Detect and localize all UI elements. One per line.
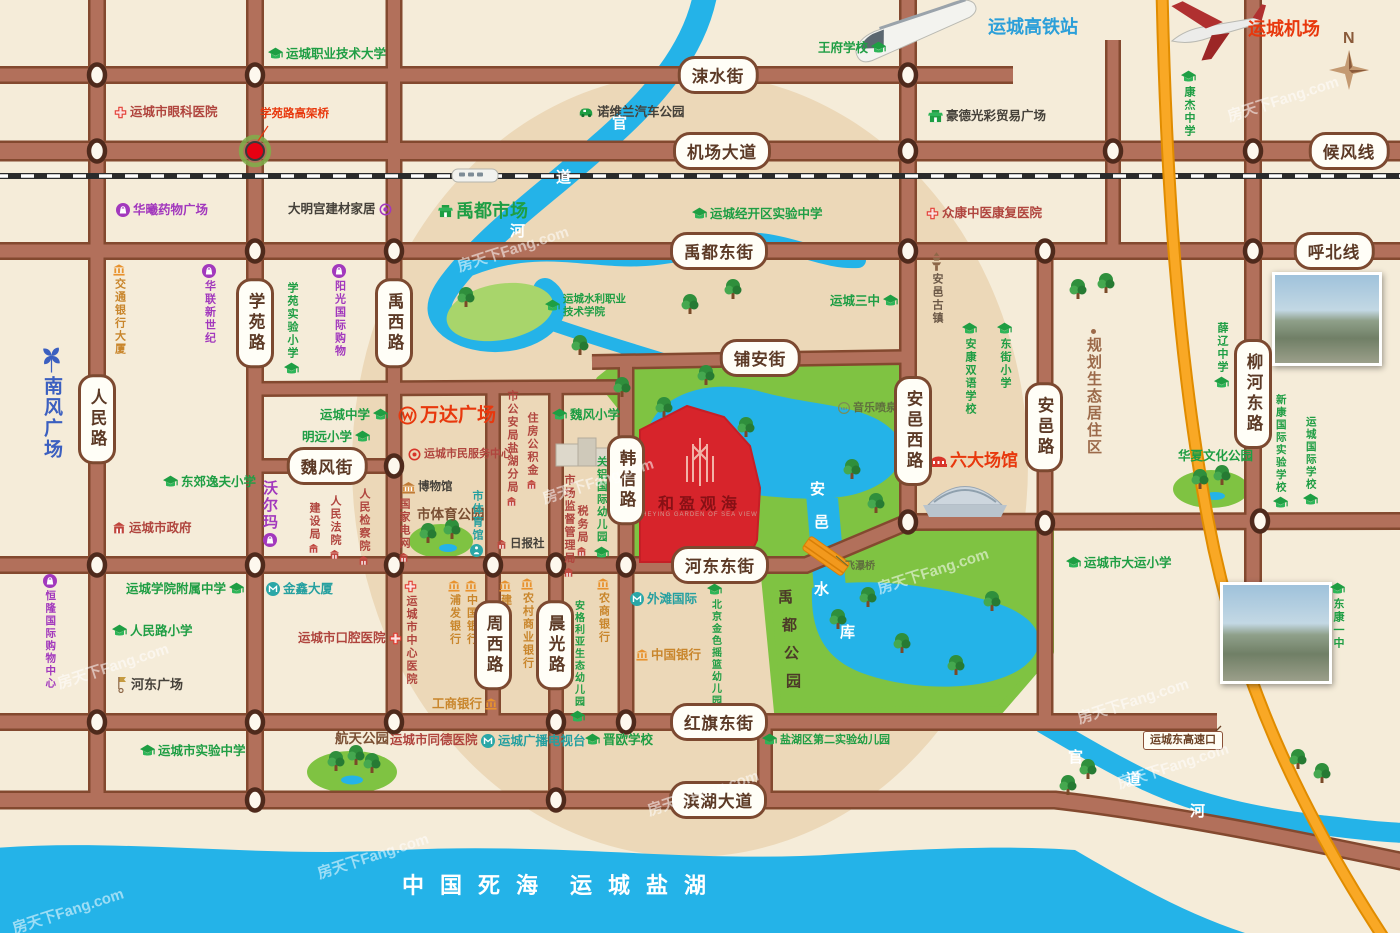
place-label: 运城中学: [320, 409, 370, 422]
place-marker: 农商银行: [597, 578, 609, 644]
school-icon: [997, 322, 1012, 336]
place-label: 东郊逸夫小学: [181, 476, 256, 489]
place-marker: 运城学院附属中学: [126, 582, 244, 596]
road-label: 安邑路: [1025, 382, 1063, 472]
place-label: 运城市眼科医院: [130, 106, 218, 119]
fountain-icon: [838, 402, 850, 414]
place-marker: 六大场馆: [930, 452, 1018, 469]
school-icon: [355, 430, 370, 444]
school-icon: [163, 475, 178, 489]
place-marker: 诺维兰汽车公园: [578, 106, 685, 119]
road-label: 柳河东路: [1234, 339, 1272, 449]
place-label: 晋欧学校: [603, 734, 653, 747]
road-label: 机场大道: [673, 132, 771, 170]
place-marker: 国家电网: [398, 498, 409, 563]
place-marker: 税务局: [576, 505, 587, 557]
place-label: 众康中医康复医院: [942, 207, 1042, 220]
place-label: 安邑古镇: [931, 273, 942, 325]
place-label: 学苑实验小学: [286, 282, 297, 360]
place-marker: 外滩国际: [630, 592, 697, 606]
place-marker: 交通银行大厦: [113, 264, 125, 356]
road-label: 晨光路: [536, 600, 574, 690]
school-icon: [373, 408, 388, 422]
school-icon: [585, 733, 600, 747]
office-icon: [481, 734, 495, 748]
place-label: 东街小学: [999, 338, 1010, 390]
place-label: 华联新世纪: [204, 280, 215, 345]
place-marker: 大明宫建材家居: [288, 203, 392, 216]
place-marker: 王府学校: [818, 41, 886, 55]
place-marker: 市场监督管理局: [563, 474, 574, 578]
place-marker: 住房公积金: [526, 412, 537, 490]
road-label: 铺安街: [720, 339, 801, 377]
place-label: 人民法院: [329, 495, 340, 547]
place-marker: 工商银行: [432, 698, 497, 711]
govsm-icon: [576, 546, 587, 557]
place-label: 运城市口腔医院: [298, 632, 386, 645]
sea-label: 中国死海: [402, 868, 554, 900]
park-name-char: 都: [782, 618, 797, 633]
place-label: 关铝国际幼儿园: [596, 456, 607, 544]
school-icon: [594, 546, 609, 560]
school-icon: [1066, 556, 1081, 570]
road-label: 呼北线: [1294, 232, 1375, 270]
place-marker: 东街小学: [997, 322, 1012, 390]
market-icon: [438, 205, 453, 218]
place-marker: 华曦药物广场: [116, 203, 208, 217]
park-name-char: 园: [786, 674, 801, 689]
govsm-icon: [506, 496, 517, 507]
place-label: 日报社: [510, 539, 545, 551]
place-marker: 运城市大运小学: [1066, 556, 1172, 570]
gov-icon: [112, 521, 126, 535]
govsm-icon: [496, 539, 507, 550]
govsm-icon: [308, 543, 319, 554]
govsm-icon: [398, 552, 409, 563]
place-label: 运城市同德医院: [390, 734, 478, 747]
river-name-char: 河: [1190, 804, 1205, 819]
river-name-char: 官: [612, 116, 627, 131]
place-label: 运城市实验中学: [158, 745, 246, 758]
place-label: 农商银行: [598, 592, 609, 644]
road-label: 安邑西路: [894, 376, 932, 486]
place-marker: 运城三中: [830, 294, 898, 308]
shop-icon: [202, 264, 216, 278]
train-on-railway-icon: [452, 169, 498, 182]
cross-icon: [114, 106, 127, 119]
place-label: 运城经开区实验中学: [710, 208, 823, 221]
place-label: 运城东高速口: [1143, 731, 1223, 750]
place-marker: 运城市同德医院: [390, 734, 494, 747]
place-marker: 航天公园: [335, 732, 389, 746]
place-marker: 金鑫大厦: [266, 582, 333, 596]
school-icon: [1330, 582, 1345, 596]
shop-icon: [116, 203, 130, 217]
school-icon: [229, 582, 244, 596]
place-marker: 华夏文化公园: [1178, 450, 1253, 463]
place-label: 浦发银行: [449, 594, 460, 646]
place-marker: 众康中医康复医院: [926, 207, 1042, 220]
place-marker: 规划生态居住区: [1086, 328, 1101, 456]
place-marker: 人民路小学: [112, 624, 193, 638]
shop-icon: [263, 533, 277, 547]
place-label: 王府学校: [818, 42, 868, 55]
road-label: 周西路: [474, 600, 512, 690]
place-label: 豪德光彩贸易广场: [946, 110, 1046, 123]
school-icon: [140, 744, 155, 758]
place-marker: 运城市实验中学: [140, 744, 246, 758]
dot-icon: [1090, 328, 1097, 335]
cross-icon: [926, 207, 939, 220]
school-icon: [570, 710, 585, 724]
flag-icon: [116, 676, 128, 693]
park-name-char: 公: [784, 646, 799, 661]
place-marker: 北京金色摇篮幼儿园: [707, 583, 722, 707]
place-marker: 安邑古镇: [930, 252, 943, 325]
place-label: 盐湖区第二实验幼儿园: [780, 735, 890, 746]
school-icon: [552, 408, 567, 422]
place-label: 运城学院附属中学: [126, 583, 226, 596]
place-marker: 运城市民服务中心: [408, 448, 512, 461]
place-marker: 阳光国际购物: [332, 264, 346, 358]
place-label: 农村商业银行: [522, 592, 533, 670]
car-icon: [578, 106, 594, 118]
govsm-icon: [358, 555, 369, 566]
place-marker: 运城职业技术大学: [268, 47, 386, 61]
bank-icon: [636, 649, 648, 661]
place-marker: 运城东高速口: [1143, 731, 1223, 750]
place-marker: 沃尔玛: [262, 480, 277, 547]
place-label: 安康双语学校: [964, 338, 975, 416]
pcircle-icon: [379, 203, 392, 216]
pinwheel-icon: [38, 342, 65, 374]
place-label: 住房公积金: [526, 412, 537, 477]
place-label: 国家电网: [398, 498, 409, 550]
place-marker: 新康国际实验学校: [1273, 394, 1288, 510]
place-marker: 运城市政府: [112, 521, 192, 535]
road-label: 红旗东街: [670, 703, 768, 741]
pagoda-icon: [930, 252, 943, 271]
location-map: 和盈观海 HEYING GARDEN OF SEA VIEW 中国死海 运城盐湖…: [0, 0, 1400, 933]
museum-icon: [402, 482, 415, 494]
venues-icon: [930, 454, 947, 468]
place-label: 飞瀑桥: [845, 562, 875, 572]
place-marker: 市公安局盐湖分局: [506, 390, 517, 507]
place-label: 人民路小学: [130, 625, 193, 638]
place-label: 东康一中: [1332, 598, 1343, 650]
school-icon: [762, 733, 777, 747]
road-label: 禹西路: [375, 278, 413, 368]
place-label: 工商银行: [432, 698, 482, 711]
sea-label: 运城盐湖: [570, 868, 722, 900]
place-label: 沃尔玛: [262, 480, 277, 531]
school-icon: [1214, 376, 1229, 390]
place-label: 音乐喷泉: [853, 403, 897, 414]
place-label: 外滩国际: [647, 593, 697, 606]
place-marker: 运城市眼科医院: [114, 106, 218, 119]
river-name-char: 道: [556, 170, 571, 185]
reservoir-name-char: 水: [814, 582, 829, 597]
place-marker: 东郊逸夫小学: [163, 475, 256, 489]
place-label: 市场监督管理局: [563, 474, 574, 565]
overpass-marker: [241, 137, 269, 165]
place-marker: 河东广场: [116, 676, 183, 693]
road-label: 河东东街: [671, 546, 769, 584]
road-label: 禹都东街: [670, 232, 768, 270]
school-icon: [707, 583, 722, 597]
place-label: 规划生态居住区: [1086, 337, 1101, 456]
place-label: 市体育馆: [471, 490, 482, 542]
cross-icon: [404, 580, 417, 593]
place-marker: 运城广播电视台: [481, 734, 586, 748]
place-marker: 安康双语学校: [962, 322, 977, 416]
place-marker: 恒隆国际购物中心: [43, 574, 57, 690]
place-label: 河东广场: [131, 678, 183, 691]
place-marker: 康杰中学: [1181, 70, 1196, 138]
target-icon: [408, 448, 421, 461]
compass-label: N: [1343, 30, 1355, 48]
place-marker: 万达广场: [398, 406, 496, 425]
project-subtitle: HEYING GARDEN OF SEA VIEW: [642, 512, 758, 518]
river-name-char: 河: [510, 224, 525, 239]
place-marker: 农村商业银行: [521, 578, 533, 670]
place-marker: 薛辽中学: [1214, 322, 1229, 390]
school-icon: [871, 41, 886, 55]
place-marker: 人民法院: [329, 495, 340, 560]
bank-icon: [448, 580, 460, 592]
bank-icon: [499, 580, 511, 592]
project-name: 和盈观海: [642, 490, 758, 514]
place-label: 交通银行大厦: [114, 278, 125, 356]
office-icon: [266, 582, 280, 596]
school-icon: [268, 47, 283, 61]
river-name-char: 道: [1126, 772, 1141, 787]
place-marker: 运城市中心医院: [404, 580, 417, 686]
river-name-char: 官: [1068, 750, 1083, 765]
place-label: 康杰中学: [1183, 86, 1194, 138]
place-marker: 盐湖区第二实验幼儿园: [762, 733, 890, 747]
place-marker: 运城中学: [320, 408, 388, 422]
place-marker: 运城高铁站: [988, 18, 1078, 36]
road-label: 人民路: [78, 374, 116, 464]
place-label: 运城高铁站: [988, 18, 1078, 36]
place-marker: 浦发银行: [448, 580, 460, 646]
road-label: 涑水街: [678, 56, 759, 94]
govsm-icon: [329, 549, 340, 560]
place-marker: 飞瀑桥: [845, 562, 875, 572]
market-icon: [928, 110, 943, 123]
bank-icon: [485, 698, 497, 710]
place-marker: 学苑路高架桥: [260, 109, 329, 121]
place-marker: 运城水利职业技术学院: [545, 293, 635, 319]
place-marker: 魏风小学: [552, 408, 620, 422]
reservoir-name-char: 库: [840, 625, 855, 640]
school-icon: [1273, 496, 1288, 510]
place-label: 薛辽中学: [1216, 322, 1227, 374]
place-label: 恒隆国际购物中心: [45, 590, 56, 690]
reservoir-name-char: 安: [810, 482, 825, 497]
place-marker: 豪德光彩贸易广场: [928, 110, 1046, 123]
place-label: 税务局: [576, 505, 587, 544]
school-icon: [545, 299, 560, 313]
road-label: 候风线: [1309, 132, 1390, 170]
wanda-icon: [398, 406, 417, 425]
place-label: 中国银行: [651, 649, 701, 662]
place-label: 运城国际学校: [1305, 416, 1316, 491]
school-icon: [692, 207, 707, 221]
shop-icon: [43, 574, 57, 588]
bank-icon: [465, 580, 477, 592]
reservoir-name-char: 邑: [814, 515, 829, 530]
place-label: 运城市大运小学: [1084, 557, 1172, 570]
road-label: 魏风街: [287, 447, 368, 485]
place-label: 诺维兰汽车公园: [597, 106, 685, 119]
place-label: 魏风小学: [570, 409, 620, 422]
govsm-icon: [526, 479, 537, 490]
place-marker: 日报社: [496, 539, 545, 551]
place-label: 市公安局盐湖分局: [506, 390, 517, 494]
place-label: 大明宫建材家居: [288, 203, 376, 216]
campus-photo-inset: [1220, 582, 1332, 684]
place-marker: 音乐喷泉: [838, 402, 897, 414]
shop-icon: [332, 264, 346, 278]
place-label: 禹都市场: [456, 202, 528, 220]
campus-photo-inset: [1272, 272, 1382, 366]
school-icon: [1303, 493, 1318, 507]
place-label: 新康国际实验学校: [1275, 394, 1286, 494]
place-marker: 东康一中: [1330, 582, 1345, 650]
place-label: 金鑫大厦: [283, 583, 333, 596]
place-marker: 学苑实验小学: [284, 282, 299, 376]
place-label: 运城市中心医院: [405, 595, 416, 686]
place-label: 航天公园: [335, 732, 389, 746]
bank-icon: [597, 578, 609, 590]
place-marker: 人民检察院: [358, 488, 369, 566]
school-icon: [284, 362, 299, 376]
place-marker: 华联新世纪: [202, 264, 216, 345]
place-marker: 晋欧学校: [585, 733, 653, 747]
road-label: 滨湖大道: [669, 781, 767, 819]
place-marker: 禹都市场: [438, 202, 528, 220]
place-marker: 建设局: [308, 502, 319, 554]
place-label: 南风广场: [42, 376, 61, 460]
place-label: 阳光国际购物: [334, 280, 345, 358]
office-icon: [630, 592, 644, 606]
place-label: 万达广场: [420, 406, 496, 425]
place-marker: 中国银行: [636, 649, 701, 662]
place-label: 人民检察院: [358, 488, 369, 553]
place-label: 运城市政府: [129, 522, 192, 535]
place-label: 运城市民服务中心: [424, 449, 512, 460]
place-label: 华夏文化公园: [1178, 450, 1253, 463]
place-label: 运城水利职业技术学院: [563, 293, 635, 319]
bank-icon: [521, 578, 533, 590]
place-marker: 博物馆: [402, 482, 453, 494]
place-label: 运城机场: [1248, 20, 1320, 38]
school-icon: [962, 322, 977, 336]
school-icon: [112, 624, 127, 638]
school-icon: [1181, 70, 1196, 84]
road-label: 韩信路: [607, 435, 645, 525]
place-label: 六大场馆: [950, 452, 1018, 469]
place-label: 明远小学: [302, 431, 352, 444]
place-label: 建设局: [308, 502, 319, 541]
compass-icon: [1329, 50, 1369, 90]
place-marker: 南风广场: [38, 342, 65, 460]
place-marker: 明远小学: [302, 430, 370, 444]
place-marker: 运城经开区实验中学: [692, 207, 823, 221]
stadium-icon: [470, 544, 483, 557]
bank-icon: [113, 264, 125, 276]
place-label: 博物馆: [418, 482, 453, 494]
road-label: 学苑路: [236, 278, 274, 368]
place-label: 华曦药物广场: [133, 204, 208, 217]
school-icon: [883, 294, 898, 308]
place-label: 安格利亚生态幼儿园: [573, 600, 583, 708]
place-marker: 运城国际学校: [1303, 416, 1318, 507]
place-marker: 运城机场: [1248, 20, 1320, 38]
place-marker: 市体育馆: [470, 490, 483, 557]
govsm-icon: [563, 567, 574, 578]
place-label: 运城三中: [830, 295, 880, 308]
place-marker: 运城市口腔医院: [298, 632, 402, 645]
place-label: 运城广播电视台: [498, 735, 586, 748]
park-name-char: 禹: [778, 590, 793, 605]
cross-icon: [389, 632, 402, 645]
place-label: 运城职业技术大学: [286, 48, 386, 61]
place-label: 北京金色摇篮幼儿园: [710, 599, 720, 707]
place-label: 学苑路高架桥: [260, 109, 329, 121]
